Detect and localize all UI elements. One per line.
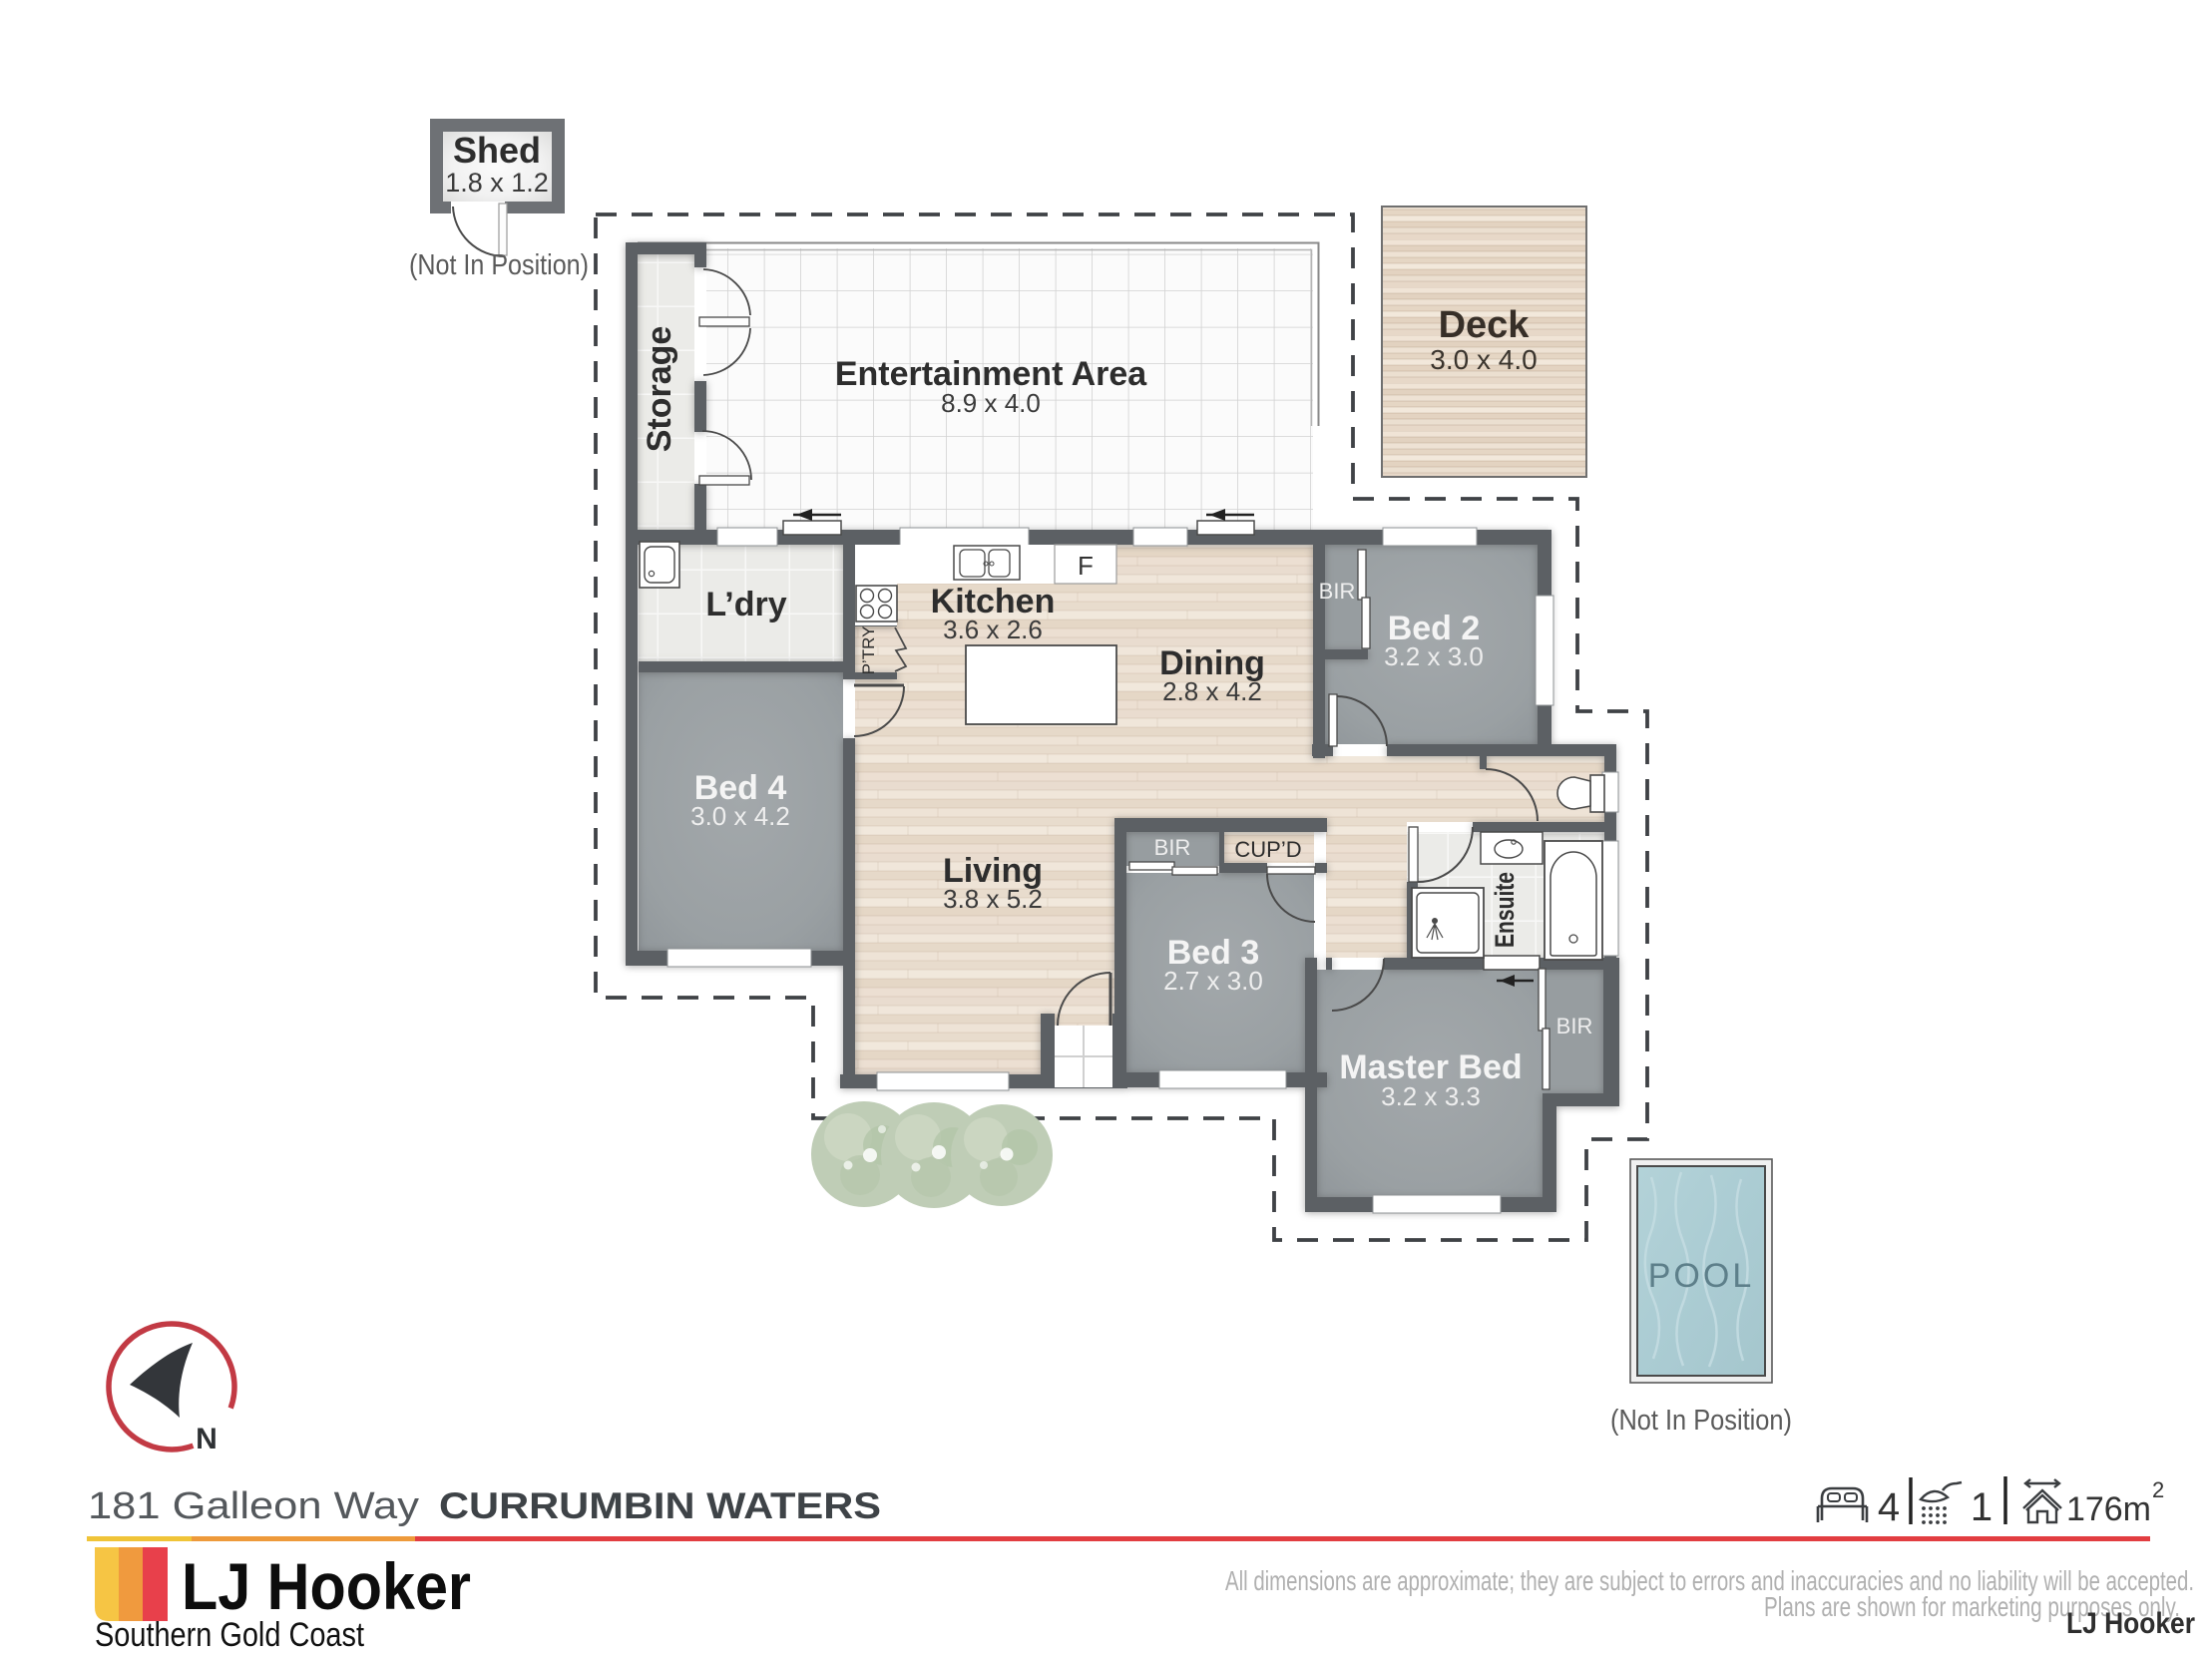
svg-text:Southern Gold Coast: Southern Gold Coast: [95, 1616, 364, 1654]
svg-text:3.2 x 3.3: 3.2 x 3.3: [1381, 1081, 1481, 1111]
svg-text:176m: 176m: [2066, 1490, 2151, 1528]
svg-text:BIR: BIR: [1556, 1014, 1593, 1038]
svg-text:3.0 x 4.0: 3.0 x 4.0: [1430, 344, 1537, 375]
svg-text:P’TRY: P’TRY: [859, 626, 878, 675]
svg-text:Shed: Shed: [453, 130, 541, 171]
svg-text:3.6 x 2.6: 3.6 x 2.6: [943, 615, 1043, 644]
svg-text:(Not In Position): (Not In Position): [1610, 1405, 1792, 1437]
svg-text:LJ Hooker: LJ Hooker: [2066, 1607, 2195, 1640]
svg-text:Storage: Storage: [641, 326, 678, 453]
svg-text:CUP’D: CUP’D: [1234, 837, 1301, 862]
svg-text:3.8 x 5.2: 3.8 x 5.2: [943, 884, 1043, 914]
svg-text:POOL: POOL: [1648, 1257, 1754, 1295]
svg-text:Deck: Deck: [1439, 304, 1531, 346]
svg-text:2.7 x 3.0: 2.7 x 3.0: [1163, 966, 1263, 996]
svg-text:3.2 x 3.0: 3.2 x 3.0: [1384, 641, 1484, 671]
svg-text:1: 1: [1971, 1485, 1992, 1529]
svg-text:2: 2: [2152, 1477, 2164, 1502]
svg-text:1.8 x 1.2: 1.8 x 1.2: [445, 168, 549, 198]
svg-text:8.9 x 4.0: 8.9 x 4.0: [941, 388, 1041, 418]
svg-text:BIR: BIR: [1319, 579, 1356, 604]
svg-text:CURRUMBIN WATERS: CURRUMBIN WATERS: [439, 1485, 881, 1526]
svg-text:BIR: BIR: [1154, 835, 1191, 860]
svg-text:F: F: [1078, 551, 1094, 581]
svg-text:N: N: [196, 1423, 218, 1455]
svg-text:3.0 x 4.2: 3.0 x 4.2: [690, 801, 790, 831]
svg-text:(Not In Position): (Not In Position): [409, 249, 589, 281]
svg-text:Ensuite: Ensuite: [1490, 872, 1520, 948]
svg-text:2.8 x 4.2: 2.8 x 4.2: [1162, 676, 1262, 706]
svg-text:181 Galleon Way: 181 Galleon Way: [88, 1485, 419, 1527]
svg-text:LJ Hooker: LJ Hooker: [182, 1549, 471, 1623]
svg-text:4: 4: [1878, 1485, 1900, 1529]
svg-text:L’dry: L’dry: [705, 586, 786, 623]
